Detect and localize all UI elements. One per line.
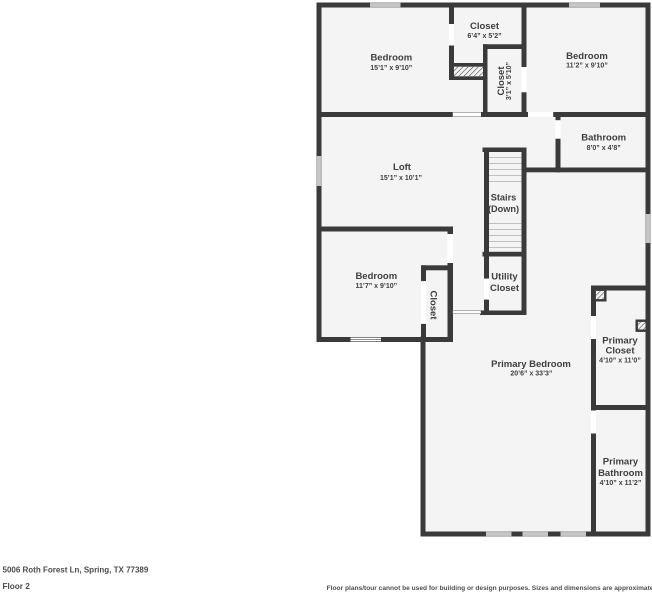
svg-text:11’2” x 9’10”: 11’2” x 9’10”: [566, 63, 608, 70]
svg-text:3’1” x 5’10”: 3’1” x 5’10”: [506, 62, 513, 100]
svg-text:15’1” x 9’10”: 15’1” x 9’10”: [370, 65, 412, 72]
svg-text:Floor 2: Floor 2: [3, 582, 31, 591]
svg-text:Bedroom: Bedroom: [566, 51, 608, 62]
svg-text:4’10” x 11’0”: 4’10” x 11’0”: [599, 357, 641, 364]
svg-text:Primary: Primary: [603, 456, 639, 467]
svg-text:8’0” x 4’8”: 8’0” x 4’8”: [587, 145, 621, 152]
svg-text:Closet: Closet: [605, 345, 635, 356]
svg-text:Closet: Closet: [470, 21, 500, 32]
svg-text:Bedroom: Bedroom: [355, 271, 397, 282]
svg-text:Closet: Closet: [428, 290, 439, 320]
svg-text:11’7” x 9’10”: 11’7” x 9’10”: [355, 283, 397, 290]
svg-text:Stairs: Stairs: [491, 193, 517, 203]
svg-text:6’4” x 5’2”: 6’4” x 5’2”: [467, 33, 501, 40]
svg-text:Utility: Utility: [491, 272, 518, 283]
svg-text:Primary Bedroom: Primary Bedroom: [491, 359, 571, 370]
svg-text:(Down): (Down): [488, 204, 519, 214]
svg-text:20’6” x 33’3”: 20’6” x 33’3”: [510, 370, 552, 377]
svg-text:4’10” x 11’2”: 4’10” x 11’2”: [600, 480, 642, 487]
svg-text:5006 Roth Forest Ln, Spring, T: 5006 Roth Forest Ln, Spring, TX 77389: [3, 566, 149, 575]
svg-text:Closet: Closet: [490, 283, 520, 294]
svg-text:Loft: Loft: [393, 162, 412, 173]
svg-text:15’1” x 10’1”: 15’1” x 10’1”: [380, 175, 422, 182]
svg-text:Floor plans/tour cannot be use: Floor plans/tour cannot be used for buil…: [327, 585, 652, 592]
svg-text:Bathroom: Bathroom: [581, 133, 626, 144]
svg-text:Bathroom: Bathroom: [598, 468, 643, 479]
svg-text:Bedroom: Bedroom: [370, 53, 412, 64]
